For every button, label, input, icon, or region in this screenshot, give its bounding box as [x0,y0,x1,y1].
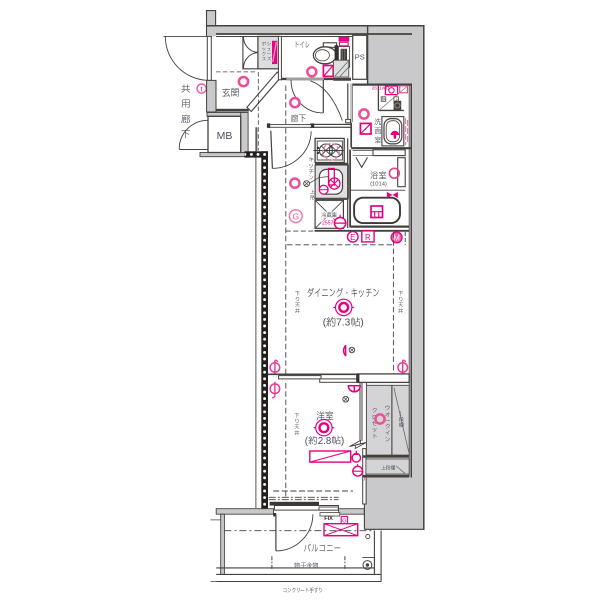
svg-text:E: E [350,232,355,244]
svg-text:玄関: 玄関 [222,87,240,101]
svg-text:共用廊下: 共用廊下 [181,83,191,143]
svg-text:PS: PS [355,53,365,64]
svg-text:コンクリート手すり: コンクリート手すり [283,586,323,595]
svg-text:下り天井: 下り天井 [294,412,300,437]
svg-text:トイレ: トイレ [294,40,310,52]
svg-text:FIX: FIX [324,515,333,523]
svg-text:ウォークイン: ウォークイン [385,404,391,445]
svg-text:物干金物: 物干金物 [294,561,319,570]
svg-text:シューズ: シューズ [267,42,272,64]
svg-text:廊下: 廊下 [291,113,307,126]
svg-text:2557: 2557 [322,220,334,228]
svg-text:ボックス: ボックス [262,41,267,64]
svg-text:冷蔵庫: 冷蔵庫 [321,211,337,220]
svg-text:上吊: 上吊 [310,189,315,203]
svg-text:下り天井: 下り天井 [295,290,301,315]
svg-text:上段棚: 上段棚 [381,465,396,473]
svg-text:バルコニー: バルコニー [304,543,342,557]
svg-text:洗面室: 洗面室 [374,118,381,147]
svg-text:(1014): (1014) [370,180,387,189]
svg-text:MB: MB [217,128,233,144]
svg-text:(約2.8帖): (約2.8帖) [305,435,345,449]
svg-text:t: t [201,85,203,95]
svg-text:洋室: 洋室 [316,409,334,425]
svg-text:(約7.3帖): (約7.3帖) [323,315,364,331]
svg-text:下り天井: 下り天井 [398,290,404,315]
svg-text:G: G [292,210,299,223]
svg-text:M: M [393,232,400,244]
svg-text:R: R [365,232,371,244]
svg-text:キッチン: キッチン [308,157,314,183]
svg-text:2611WD: 2611WD [372,86,390,93]
